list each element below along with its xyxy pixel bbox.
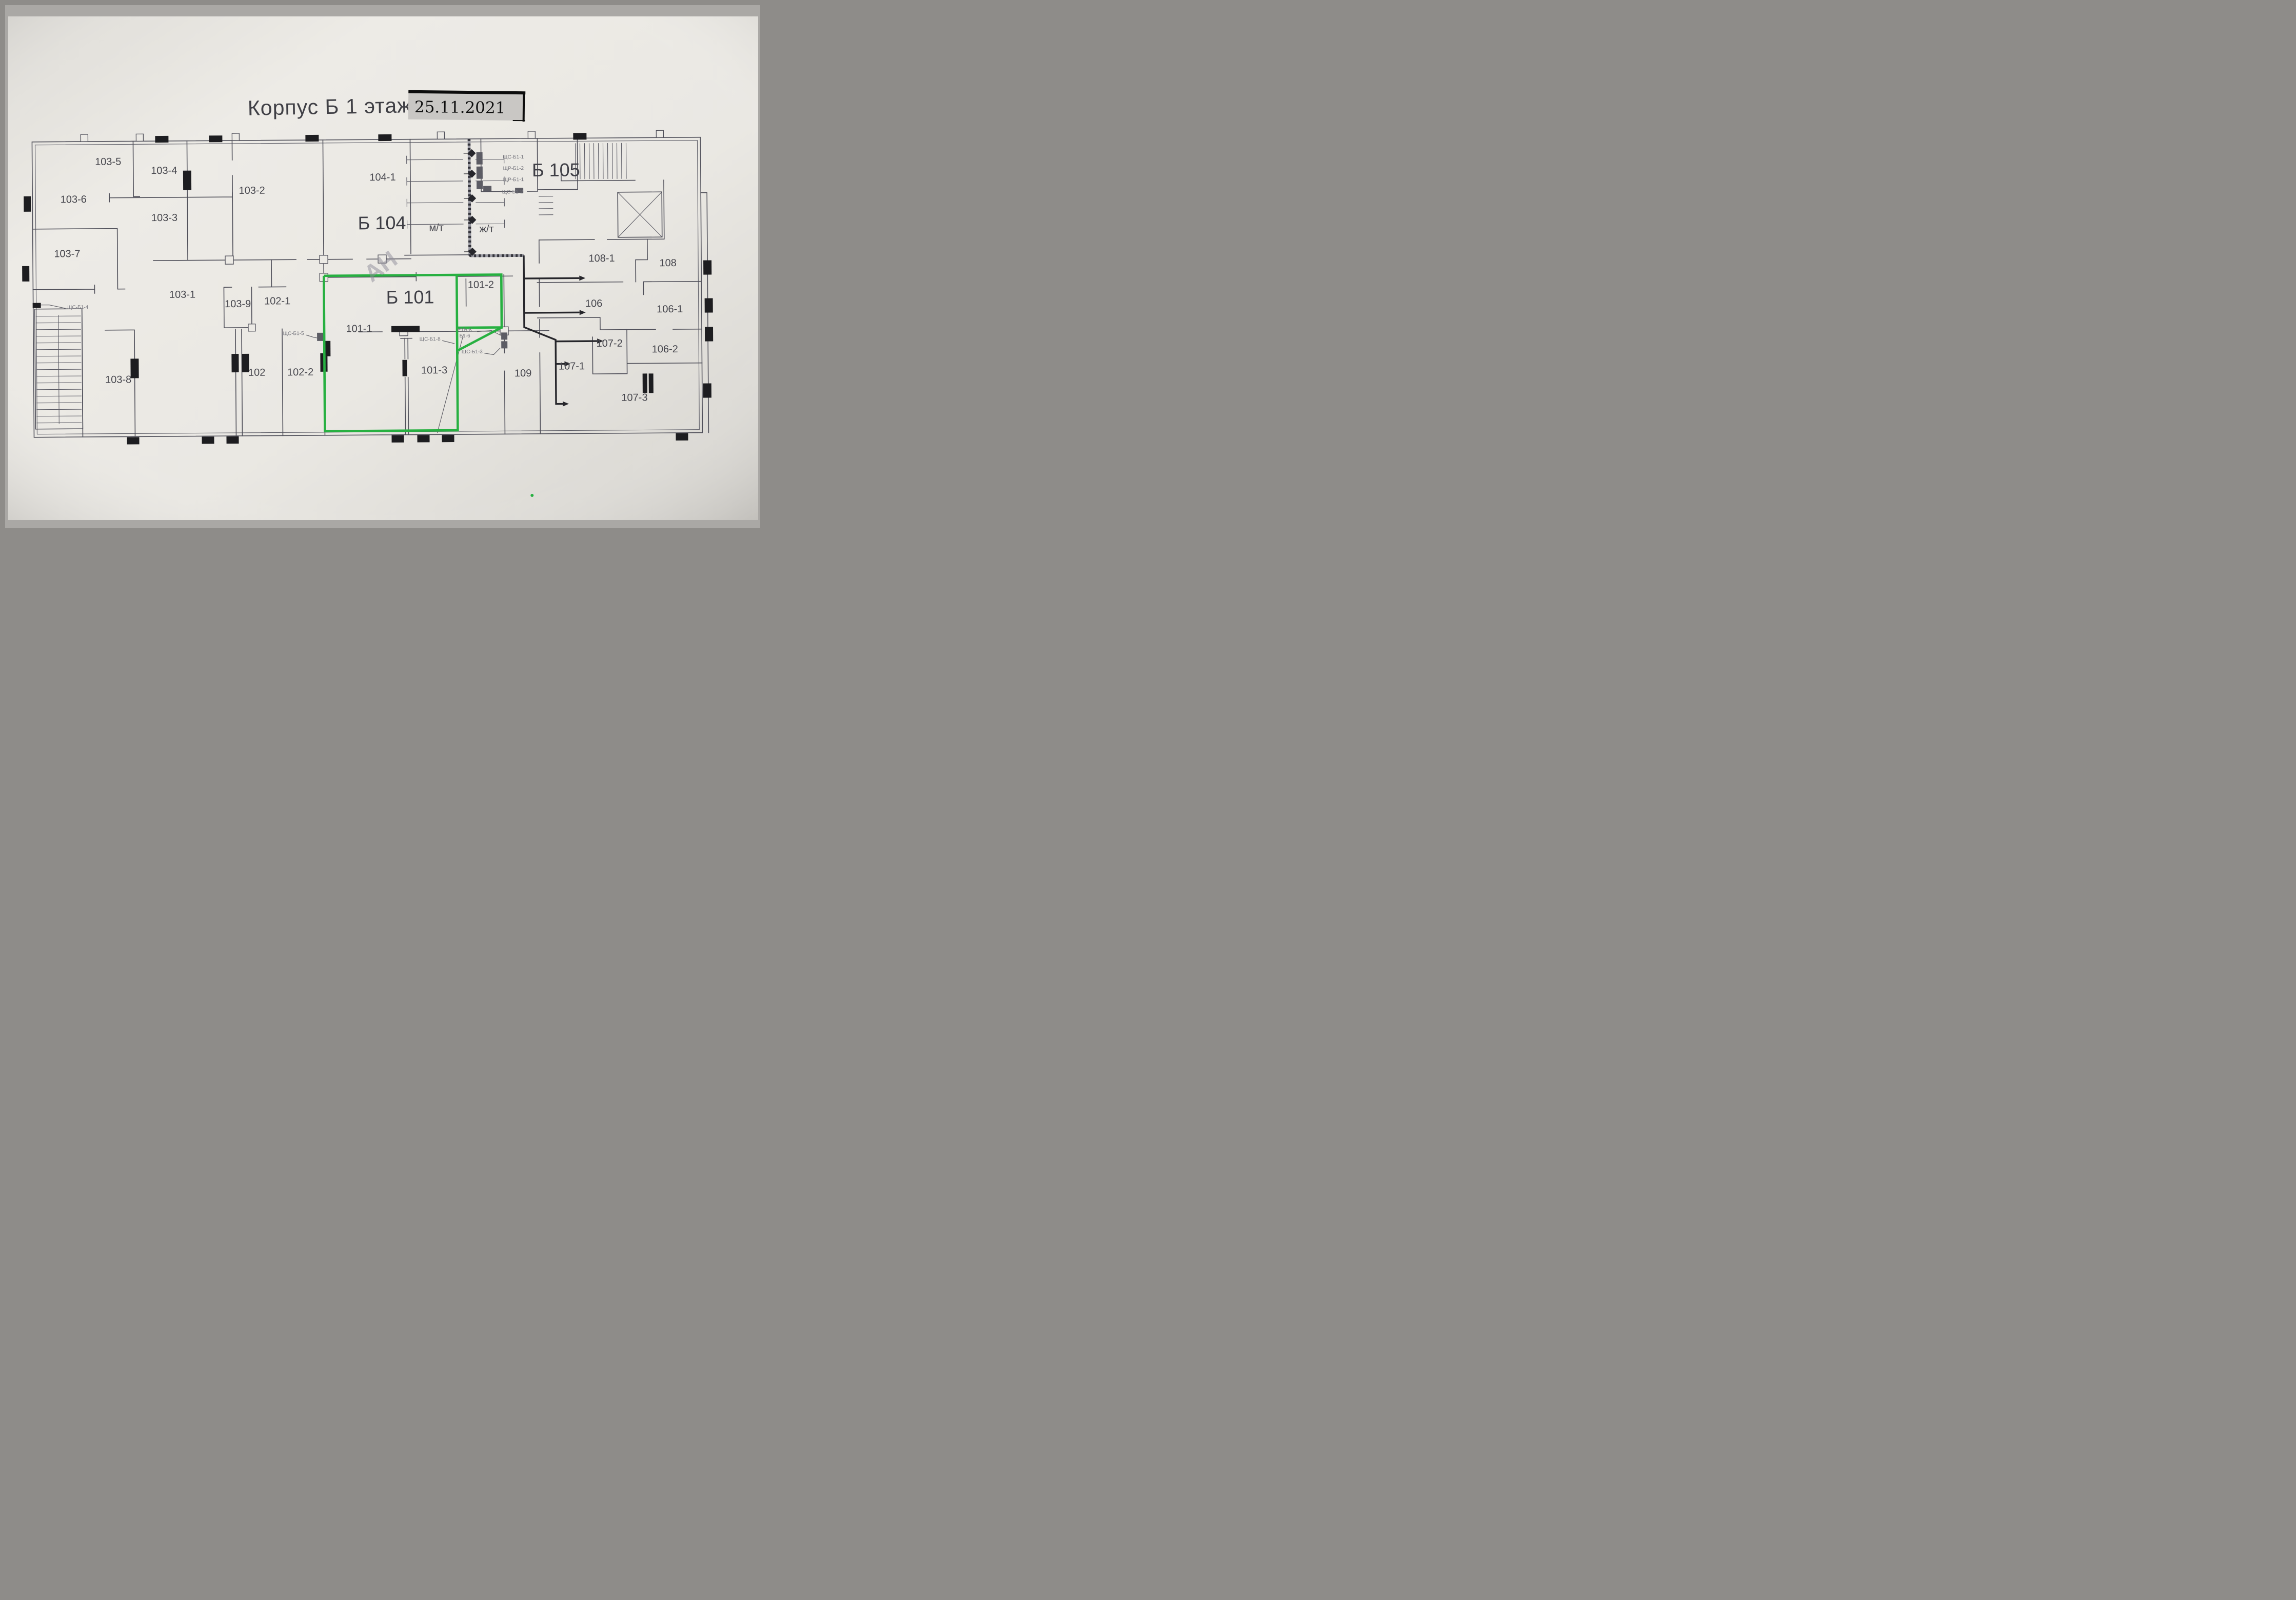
room-label-РУБ-К: РУБ-К [458,327,472,333]
room-label-106-1: 106-1 [657,304,683,315]
room-label-103-7: 103-7 [54,248,80,259]
room-label-ЩР-Б1-2: ЩР-Б1-2 [503,166,524,171]
green-dot [530,494,533,497]
date-stamp-box: 25.11.2021 [408,91,526,122]
room-label-102-2: 102-2 [287,367,313,378]
room-label-107-1: 107-1 [559,361,585,372]
room-label-103-9: 103-9 [225,298,251,310]
room-label-ЩС-Б1-4: ЩС-Б1-4 [67,305,88,310]
room-label-103-5: 103-5 [95,156,121,168]
room-label-Б 105: Б 105 [532,159,580,181]
room-label-106: 106 [585,298,603,309]
room-label-Б 101: Б 101 [386,286,434,308]
room-label-Б 104: Б 104 [358,212,406,234]
room-label-109: 109 [514,368,532,379]
room-label-ЩС-Б1-3: ЩС-Б1-3 [462,349,483,355]
room-label-ЩС-Б1-2: ЩС-Б1-2 [502,189,523,195]
room-label-102: 102 [248,367,266,378]
room-label-103-2: 103-2 [239,185,265,196]
room-label-ЩС-Б1-8: ЩС-Б1-8 [420,336,441,342]
room-label-104-1: 104-1 [369,172,395,183]
plan-title: Корпус Б 1 этаж [248,93,412,120]
room-label-108: 108 [659,257,677,269]
room-label-ж/т: ж/т [480,224,494,235]
room-label-103-3: 103-3 [151,212,177,224]
room-label-107-2: 107-2 [597,338,623,349]
room-label-м/т: м/т [429,222,444,233]
room-label-101-2: 101-2 [468,279,494,291]
room-label-108-1: 108-1 [588,253,615,264]
room-label-103-1: 103-1 [169,289,195,301]
room-label-101-3: 101-3 [421,365,447,376]
room-label-103-4: 103-4 [151,165,177,176]
room-label-102-1: 102-1 [264,295,290,307]
room-label-107-3: 107-3 [621,392,647,403]
date-stamp-text: 25.11.2021 [414,98,506,117]
floor-plan-canvas: АН 103-5103-4103-6103-3103-2104-1103-710… [0,0,765,533]
room-label-103-6: 103-6 [61,194,87,205]
room-label-ЩС-Б1-1: ЩС-Б1-1 [503,154,524,160]
room-label-Б1-6: Б1-6 [460,333,471,339]
room-label-103-8: 103-8 [105,374,131,385]
room-label-ЩС-Б1-5: ЩС-Б1-5 [283,331,304,336]
room-label-101-1: 101-1 [346,323,372,334]
scanned-floor-plan-photo: АН 103-5103-4103-6103-3103-2104-1103-710… [0,0,765,533]
room-label-ЩР-Б1-1: ЩР-Б1-1 [503,177,524,183]
room-label-106-2: 106-2 [652,344,678,355]
